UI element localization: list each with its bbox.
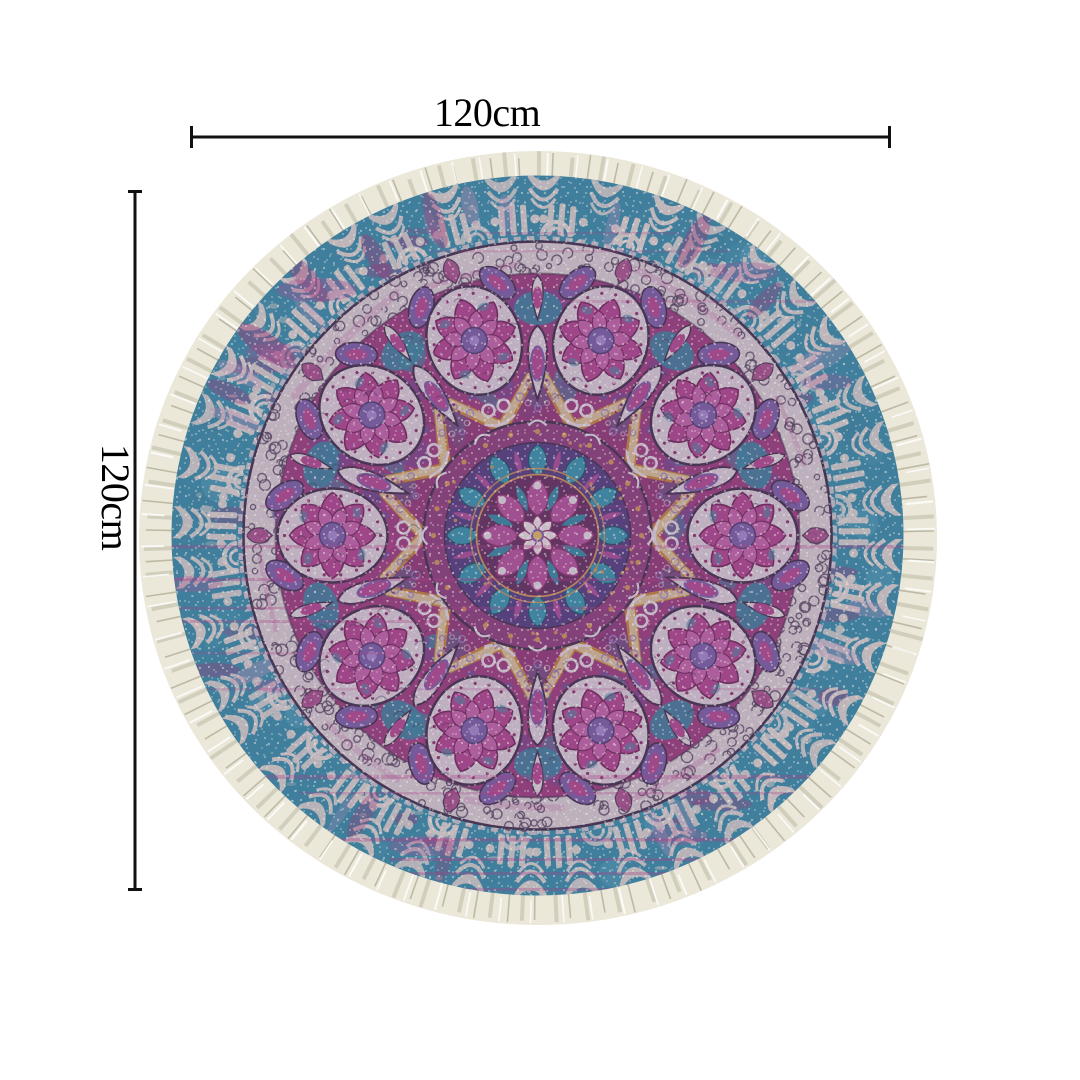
svg-text:120cm: 120cm [93,444,138,551]
svg-text:120cm: 120cm [434,90,541,135]
